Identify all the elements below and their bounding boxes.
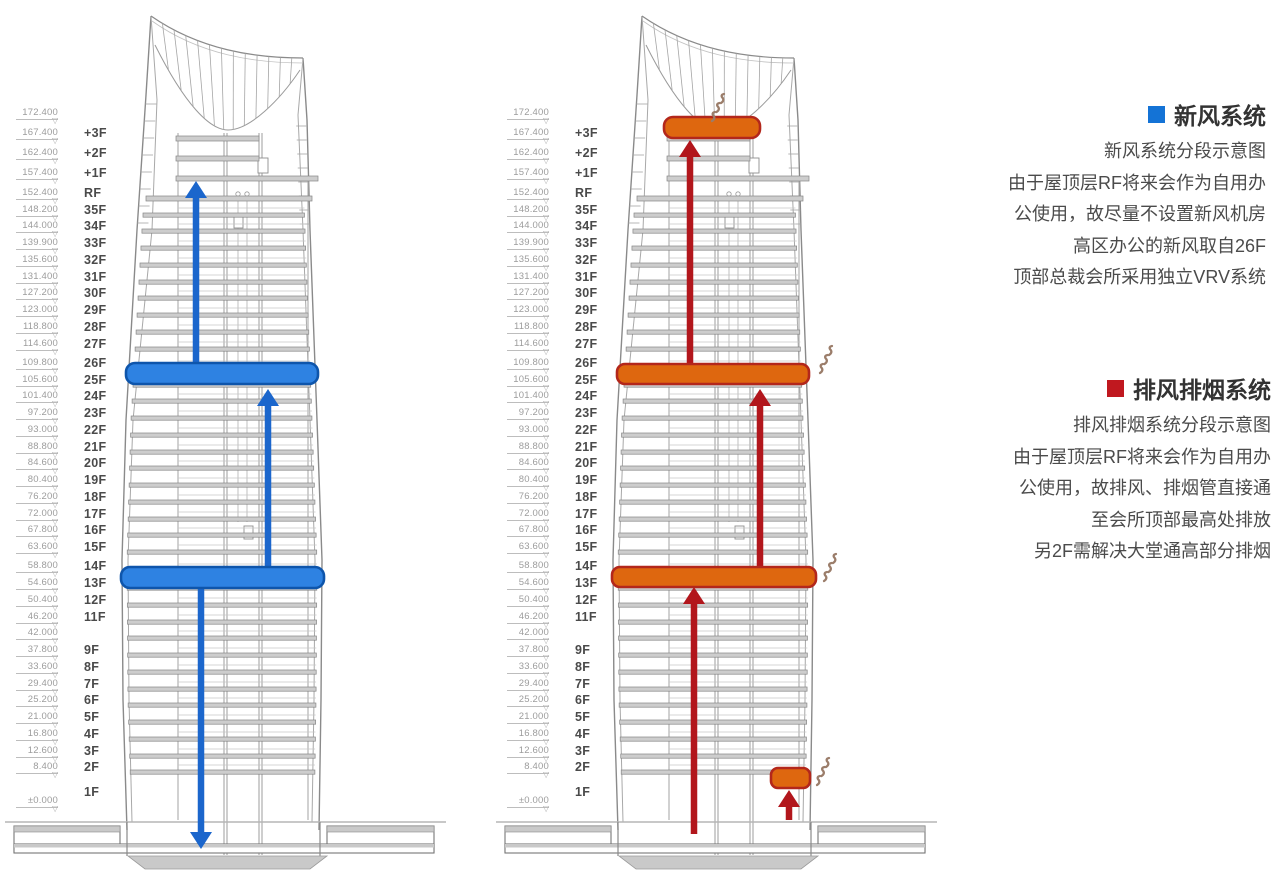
floor-label: 23F xyxy=(575,406,597,420)
legend-line: 由于屋顶层RF将来会作为自用办 xyxy=(1013,442,1271,474)
elevation-marker-icon: ▽ xyxy=(543,137,549,145)
scale-row: 152.400▽RF xyxy=(0,188,130,204)
elevation-marker-icon: ▽ xyxy=(52,805,58,813)
system-floor-bar xyxy=(617,364,809,384)
scale-row: 33.600▽8F xyxy=(0,662,130,678)
floor-label: 14F xyxy=(575,559,597,573)
scale-row: 33.600▽8F xyxy=(491,662,621,678)
flow-arrow xyxy=(190,588,212,849)
scale-row: 88.800▽21F xyxy=(491,442,621,458)
floor-label: 31F xyxy=(84,270,106,284)
scale-row: 8.400▽2F xyxy=(0,762,130,778)
floor-label: 34F xyxy=(84,219,106,233)
scale-row: 97.200▽23F xyxy=(491,408,621,424)
scale-row: 67.800▽16F xyxy=(0,525,130,541)
floor-label: 9F xyxy=(84,643,99,657)
scale-row: 148.200▽35F xyxy=(0,205,130,221)
floor-label: 33F xyxy=(84,236,106,250)
scale-row: 131.400▽31F xyxy=(491,272,621,288)
scale-row: 162.400▽+2F xyxy=(491,148,621,164)
diagram-canvas: 172.400▽167.400▽+3F162.400▽+2F157.400▽+1… xyxy=(0,0,1280,883)
scale-row: 139.900▽33F xyxy=(491,238,621,254)
elevation-marker-icon: ▽ xyxy=(52,348,58,356)
floor-label: 5F xyxy=(575,710,590,724)
scale-row: ±0.000▽ xyxy=(491,796,621,812)
floor-label: RF xyxy=(84,186,101,200)
scale-row: 42.000▽ xyxy=(491,628,621,644)
flow-arrow xyxy=(257,389,279,406)
elevation-marker-icon: ▽ xyxy=(543,117,549,125)
floor-label: 3F xyxy=(575,744,590,758)
floor-label: 21F xyxy=(575,440,597,454)
scale-row: 118.800▽28F xyxy=(491,322,621,338)
elevation-marker-icon: ▽ xyxy=(543,771,549,779)
scale-row: 46.200▽11F xyxy=(491,612,621,628)
floor-label: 7F xyxy=(84,677,99,691)
scale-row: 72.000▽17F xyxy=(0,509,130,525)
scale-row: 84.600▽20F xyxy=(491,458,621,474)
scale-row: 101.400▽24F xyxy=(491,391,621,407)
floor-label: 31F xyxy=(575,270,597,284)
legend-line: 排风排烟系统分段示意图 xyxy=(1013,410,1271,442)
scale-row: 93.000▽22F xyxy=(491,425,621,441)
floor-label: 18F xyxy=(84,490,106,504)
system-floor-bar xyxy=(126,363,318,384)
scale-row: 16.800▽4F xyxy=(0,729,130,745)
elevation-scale-left: 172.400▽167.400▽+3F162.400▽+2F157.400▽+1… xyxy=(0,0,130,883)
floor-label: +1F xyxy=(84,166,107,180)
scale-row: 123.000▽29F xyxy=(0,305,130,321)
legend-line: 新风系统分段示意图 xyxy=(1008,136,1266,168)
scale-row: 42.000▽ xyxy=(0,628,130,644)
scale-row: 54.600▽13F xyxy=(0,578,130,594)
floor-label: 22F xyxy=(84,423,106,437)
floor-label: 17F xyxy=(575,507,597,521)
flow-arrow xyxy=(778,790,800,807)
scale-row: 21.000▽5F xyxy=(0,712,130,728)
floor-label: 16F xyxy=(84,523,106,537)
floor-label: 11F xyxy=(84,610,106,624)
scale-row: 8.400▽2F xyxy=(491,762,621,778)
blue-square-icon xyxy=(1148,106,1165,123)
floor-label: 14F xyxy=(84,559,106,573)
legend-exhaust-title-row: 排风排烟系统 xyxy=(1013,371,1271,405)
elevation-marker-icon: ▽ xyxy=(52,157,58,165)
floor-label: +1F xyxy=(575,166,598,180)
scale-row: 135.600▽32F xyxy=(0,255,130,271)
floor-label: 32F xyxy=(84,253,106,267)
floor-label: 8F xyxy=(84,660,99,674)
floor-label: 30F xyxy=(575,286,597,300)
floor-label: 20F xyxy=(84,456,106,470)
scale-row: 67.800▽16F xyxy=(491,525,621,541)
floor-label: 16F xyxy=(575,523,597,537)
scale-row: 88.800▽21F xyxy=(0,442,130,458)
floor-label: 21F xyxy=(84,440,106,454)
scale-row: 144.000▽34F xyxy=(491,221,621,237)
floor-label: 17F xyxy=(84,507,106,521)
floor-label: 7F xyxy=(575,677,590,691)
elevation-marker-icon: ▽ xyxy=(52,117,58,125)
scale-row: 80.400▽19F xyxy=(0,475,130,491)
scale-row: 12.600▽3F xyxy=(491,746,621,762)
scale-row: 50.400▽12F xyxy=(491,595,621,611)
scale-row: 139.900▽33F xyxy=(0,238,130,254)
legend-line: 公使用，故尽量不设置新风机房 xyxy=(1008,199,1266,231)
floor-label: 32F xyxy=(575,253,597,267)
floor-label: 33F xyxy=(575,236,597,250)
floor-label: 35F xyxy=(575,203,597,217)
elevation-marker-icon: ▽ xyxy=(52,771,58,779)
scale-row: 114.600▽27F xyxy=(0,339,130,355)
scale-row: 114.600▽27F xyxy=(491,339,621,355)
scale-row: 131.400▽31F xyxy=(0,272,130,288)
scale-row: 97.200▽23F xyxy=(0,408,130,424)
scale-row: 123.000▽29F xyxy=(491,305,621,321)
system-floor-bar xyxy=(612,567,816,587)
scale-row: 25.200▽6F xyxy=(0,695,130,711)
floor-label: 30F xyxy=(84,286,106,300)
scale-row: 54.600▽13F xyxy=(491,578,621,594)
scale-row: 148.200▽35F xyxy=(491,205,621,221)
floor-label: 9F xyxy=(575,643,590,657)
elevation-marker-icon: ▽ xyxy=(543,348,549,356)
legend-line: 由于屋顶层RF将来会作为自用办 xyxy=(1008,168,1266,200)
floor-label: 22F xyxy=(575,423,597,437)
scale-row: 105.600▽25F xyxy=(491,375,621,391)
scale-row: 37.800▽9F xyxy=(491,645,621,661)
scale-row: 152.400▽RF xyxy=(491,188,621,204)
floor-label: RF xyxy=(575,186,592,200)
floor-label: 29F xyxy=(575,303,597,317)
scale-row: 58.800▽14F xyxy=(0,561,130,577)
floor-label: 26F xyxy=(84,356,106,370)
scale-row: 172.400▽ xyxy=(491,108,621,124)
scale-row: 118.800▽28F xyxy=(0,322,130,338)
elevation-marker-icon: ▽ xyxy=(543,551,549,559)
floor-label: 24F xyxy=(575,389,597,403)
elevation-scale-right: 172.400▽167.400▽+3F162.400▽+2F157.400▽+1… xyxy=(491,0,621,883)
scale-row: 127.200▽30F xyxy=(0,288,130,304)
scale-row: 76.200▽18F xyxy=(491,492,621,508)
floor-label: 8F xyxy=(575,660,590,674)
floor-label: 23F xyxy=(84,406,106,420)
scale-row: 76.200▽18F xyxy=(0,492,130,508)
scale-row: 25.200▽6F xyxy=(491,695,621,711)
legend-fresh-air-title-row: 新风系统 xyxy=(1008,97,1266,131)
legend-line: 公使用，故排风、排烟管直接通 xyxy=(1013,473,1271,505)
scale-row: 127.200▽30F xyxy=(491,288,621,304)
scale-row: 167.400▽+3F xyxy=(491,128,621,144)
floor-label: 15F xyxy=(84,540,106,554)
elevation-marker-icon: ▽ xyxy=(52,177,58,185)
floor-label: 3F xyxy=(84,744,99,758)
scale-row: 29.400▽7F xyxy=(0,679,130,695)
elevation-marker-icon: ▽ xyxy=(543,805,549,813)
legend-fresh-air-lines: 新风系统分段示意图由于屋顶层RF将来会作为自用办公使用，故尽量不设置新风机房高区… xyxy=(1008,136,1266,294)
scale-row: 37.800▽9F xyxy=(0,645,130,661)
scale-row: 135.600▽32F xyxy=(491,255,621,271)
floor-label: 4F xyxy=(84,727,99,741)
scale-row: 21.000▽5F xyxy=(491,712,621,728)
system-floor-bar xyxy=(121,567,324,588)
scale-row: 84.600▽20F xyxy=(0,458,130,474)
legend-exhaust-title: 排风排烟系统 xyxy=(1133,371,1271,405)
floor-label: 6F xyxy=(575,693,590,707)
legend-line: 至会所顶部最高处排放 xyxy=(1013,505,1271,537)
floor-label: 19F xyxy=(84,473,106,487)
floor-label: 2F xyxy=(575,760,590,774)
floor-label: +3F xyxy=(575,126,598,140)
elevation-marker-icon: ▽ xyxy=(543,157,549,165)
floor-label: 2F xyxy=(84,760,99,774)
floor-label: 34F xyxy=(575,219,597,233)
scale-row: 109.800▽26F xyxy=(0,358,130,374)
floor-label: 20F xyxy=(575,456,597,470)
elevation-marker-icon: ▽ xyxy=(543,177,549,185)
legend-line: 顶部总裁会所采用独立VRV系统 xyxy=(1008,262,1266,294)
flow-arrow xyxy=(679,140,701,157)
scale-row: 167.400▽+3F xyxy=(0,128,130,144)
scale-row: ±0.000▽ xyxy=(0,796,130,812)
floor-label: 12F xyxy=(575,593,597,607)
floor-label: 28F xyxy=(84,320,106,334)
floor-label: 25F xyxy=(84,373,106,387)
system-floor-bar xyxy=(771,768,810,788)
scale-row: 12.600▽3F xyxy=(0,746,130,762)
smoke-icon xyxy=(817,758,829,785)
scale-row: 101.400▽24F xyxy=(0,391,130,407)
legend-line: 另2F需解决大堂通高部分排烟 xyxy=(1013,536,1271,568)
scale-row: 16.800▽4F xyxy=(491,729,621,745)
scale-row: 72.000▽17F xyxy=(491,509,621,525)
floor-label: 24F xyxy=(84,389,106,403)
floor-label: 27F xyxy=(84,337,106,351)
smoke-icon xyxy=(824,554,836,581)
scale-row: 63.600▽15F xyxy=(491,542,621,558)
floor-label: 28F xyxy=(575,320,597,334)
floor-label: 19F xyxy=(575,473,597,487)
legend-exhaust-lines: 排风排烟系统分段示意图由于屋顶层RF将来会作为自用办公使用，故排风、排烟管直接通… xyxy=(1013,410,1271,568)
scale-row: 50.400▽12F xyxy=(0,595,130,611)
smoke-icon xyxy=(820,346,832,373)
floor-label: 29F xyxy=(84,303,106,317)
scale-row: 46.200▽11F xyxy=(0,612,130,628)
floor-label: 26F xyxy=(575,356,597,370)
floor-label: 13F xyxy=(84,576,106,590)
scale-row: 80.400▽19F xyxy=(491,475,621,491)
floor-label: 13F xyxy=(575,576,597,590)
floor-label: 35F xyxy=(84,203,106,217)
floor-label: +3F xyxy=(84,126,107,140)
scale-row: 172.400▽ xyxy=(0,108,130,124)
floor-label: 5F xyxy=(84,710,99,724)
scale-row: 109.800▽26F xyxy=(491,358,621,374)
scale-row: 157.400▽+1F xyxy=(491,168,621,184)
legend-fresh-air-title: 新风系统 xyxy=(1174,97,1266,131)
scale-row: 93.000▽22F xyxy=(0,425,130,441)
flow-arrow xyxy=(749,389,771,406)
scale-row: 29.400▽7F xyxy=(491,679,621,695)
flow-arrow xyxy=(185,181,207,198)
floor-label: +2F xyxy=(84,146,107,160)
floor-label: 15F xyxy=(575,540,597,554)
scale-row: 63.600▽15F xyxy=(0,542,130,558)
floor-label: 18F xyxy=(575,490,597,504)
scale-row: 157.400▽+1F xyxy=(0,168,130,184)
legend-exhaust: 排风排烟系统 排风排烟系统分段示意图由于屋顶层RF将来会作为自用办公使用，故排风… xyxy=(1013,371,1271,568)
scale-row: 144.000▽34F xyxy=(0,221,130,237)
floor-label: +2F xyxy=(575,146,598,160)
floor-label: 12F xyxy=(84,593,106,607)
legend-line: 高区办公的新风取自26F xyxy=(1008,231,1266,263)
red-square-icon xyxy=(1107,380,1124,397)
floor-label: 25F xyxy=(575,373,597,387)
floor-label: 27F xyxy=(575,337,597,351)
floor-label: 4F xyxy=(575,727,590,741)
scale-row: 58.800▽14F xyxy=(491,561,621,577)
floor-label: 11F xyxy=(575,610,597,624)
elevation-marker-icon: ▽ xyxy=(52,551,58,559)
flow-arrow xyxy=(778,790,800,820)
legend-fresh-air: 新风系统 新风系统分段示意图由于屋顶层RF将来会作为自用办公使用，故尽量不设置新… xyxy=(1008,97,1266,294)
scale-row: 105.600▽25F xyxy=(0,375,130,391)
floor-label: 6F xyxy=(84,693,99,707)
elevation-marker-icon: ▽ xyxy=(52,137,58,145)
scale-row: 162.400▽+2F xyxy=(0,148,130,164)
